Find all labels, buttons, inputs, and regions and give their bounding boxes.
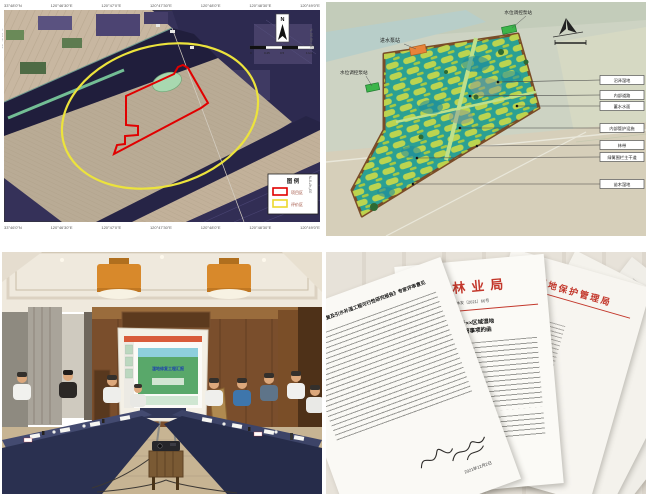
scale-tick: 0.25 — [264, 51, 270, 55]
pillar-right — [298, 307, 322, 437]
callout-label: 沼泽湿地 — [614, 77, 632, 84]
callout-label: 绿篱围栏主干道 — [607, 154, 637, 161]
signature-scribbles — [411, 423, 496, 479]
satellite-map-panel: 33°48'0"N 120°46'30"E 120°47'0"E 120°47'… — [2, 2, 322, 248]
latitude-label: 33°48'30"N — [2, 28, 4, 48]
review-date: 2021年12月2日 — [464, 460, 493, 476]
ceiling — [2, 252, 322, 312]
intake-pump-label: 进水泵站 — [380, 37, 400, 44]
legend-swatch-project — [273, 188, 287, 195]
north-label: N — [281, 17, 285, 23]
pump-level-left-label: 水位调控泵站 — [340, 69, 368, 76]
projector — [152, 441, 180, 451]
legend-label-project: 项目区 — [291, 189, 303, 195]
north-arrow: N — [276, 14, 289, 42]
wall-recess — [122, 312, 210, 328]
figure-collage: 33°48'0"N 120°46'30"E 120°47'0"E 120°47'… — [0, 0, 648, 496]
callout-label: 林带 — [618, 142, 626, 149]
callout-label: 蓄水水面 — [614, 103, 631, 110]
curtain-wall-left — [2, 307, 92, 432]
coord-label: 120°47'30"E — [150, 2, 172, 10]
ceiling-lamp — [97, 258, 141, 299]
coord-label: 120°48'30"E — [249, 2, 271, 10]
slide-title: 湿地修复工程汇报 — [152, 365, 185, 371]
satellite-map: N 0 0.25 0.5 1 km 图 例 项目区 评价区 — [4, 10, 320, 222]
coord-label: 120°47'0"E — [101, 224, 121, 232]
latitude-label: 33°48'30"N — [309, 28, 314, 48]
documents-photo-panel: 湿地保护管理局 项目验收意见 全林业局 林发〔2021〕66号 关于××区域湿地… — [326, 252, 646, 494]
coord-label: 120°47'0"E — [101, 2, 121, 10]
meeting-room: 湿地修复工程汇报 — [2, 252, 322, 494]
slide-toolbar — [124, 336, 202, 342]
plan-map: 进水泵站 水位调控泵站 水位调控泵站 — [326, 2, 646, 236]
coord-label: 120°46'30"E — [51, 2, 73, 10]
ceiling-lamp — [207, 258, 251, 299]
coord-label: 120°48'30"E — [249, 224, 271, 232]
coord-label: 120°49'0"E — [300, 2, 320, 10]
scale-tick: 1 km — [306, 51, 313, 55]
coord-label: 120°46'30"E — [51, 224, 73, 232]
coord-label: 33°48'0"N — [4, 2, 22, 10]
pump-level-right-label: 水位调控泵站 — [504, 9, 532, 16]
longitude-labels-bottom: 33°46'0"N 120°46'30"E 120°47'0"E 120°47'… — [4, 224, 320, 232]
coord-label: 120°48'0"E — [201, 224, 221, 232]
scale-tick: 0.5 — [280, 51, 285, 55]
coord-label: 120°47'30"E — [150, 224, 172, 232]
longitude-labels-top: 33°48'0"N 120°46'30"E 120°47'0"E 120°47'… — [4, 2, 320, 10]
callout-label: 内部道路 — [614, 92, 632, 99]
legend-swatch-assessment — [273, 200, 287, 207]
coord-label: 120°49'0"E — [300, 224, 320, 232]
legend-label-assessment: 评价区 — [291, 201, 303, 207]
plan-map-panel: 进水泵站 水位调控泵站 水位调控泵站 — [326, 2, 646, 244]
coord-label: 120°48'0"E — [201, 2, 221, 10]
legend-title: 图 例 — [287, 177, 300, 185]
meeting-photo-panel: 湿地修复工程汇报 — [2, 252, 322, 494]
coord-label: 33°46'0"N — [4, 224, 22, 232]
callout-label: 内部管护设施 — [609, 125, 635, 132]
latitude-label: 33°47'0"N — [307, 176, 312, 194]
callout-label: 苗木湿地 — [614, 181, 632, 188]
